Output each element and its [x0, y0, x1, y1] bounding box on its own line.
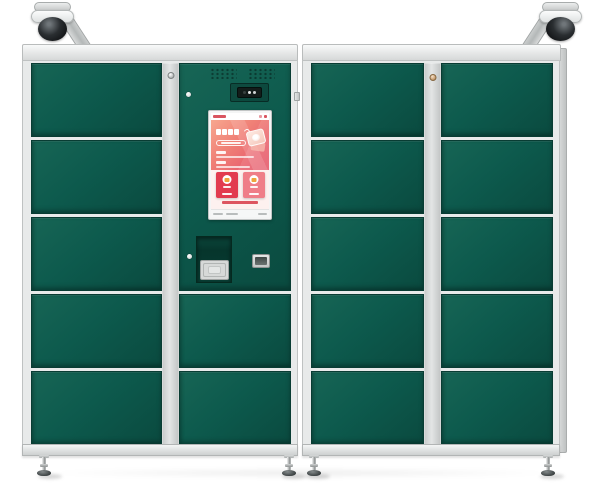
pickup-card-button[interactable] — [243, 172, 265, 198]
camera-lens-icon — [243, 91, 246, 94]
card-text-bar — [250, 186, 258, 188]
bullet-label-bar — [216, 161, 226, 164]
locker-door[interactable] — [311, 294, 424, 368]
hero-bullet-group — [216, 161, 256, 170]
screen-hero-banner — [211, 120, 269, 170]
footer-text-bar — [213, 213, 223, 215]
notice-text-bar — [222, 201, 258, 204]
status-dot — [259, 115, 262, 118]
panel-lock[interactable] — [186, 92, 191, 97]
locker-door[interactable] — [311, 63, 424, 137]
touchscreen[interactable] — [208, 110, 272, 220]
adjustable-foot — [281, 455, 297, 478]
control-panel — [179, 63, 291, 291]
hero-title — [216, 129, 239, 135]
camera-lens-icon — [253, 91, 256, 94]
left-cabinet-base — [22, 444, 298, 456]
right-cabinet-top-cap — [302, 44, 561, 61]
foot-nut — [310, 464, 318, 467]
right-cabinet-base — [302, 444, 560, 456]
title-glyph — [228, 129, 233, 135]
screen-header — [211, 113, 269, 120]
hinge — [294, 92, 300, 101]
locker-door[interactable] — [31, 294, 162, 368]
brand-logo — [213, 115, 226, 118]
foot-nut — [40, 464, 48, 467]
locker-door[interactable] — [441, 294, 553, 368]
camera-dome-lens-icon — [546, 17, 575, 41]
locker-door[interactable] — [179, 294, 291, 368]
right-cabinet-side-panel — [559, 48, 567, 453]
adjustable-foot — [36, 455, 52, 478]
card-label-bar — [222, 193, 232, 195]
control-column — [179, 63, 291, 445]
foot-nut — [285, 464, 293, 467]
deposit-parcel-icon — [225, 178, 230, 182]
panel-camera-module — [230, 83, 269, 102]
scanner-ring — [203, 263, 226, 277]
product-photo-smart-locker — [0, 0, 613, 489]
foot-nut — [544, 464, 552, 467]
locker-door[interactable] — [311, 217, 424, 291]
keyhole-lock[interactable] — [167, 72, 174, 79]
camera-dome-lens-icon — [38, 17, 67, 41]
foot-base — [541, 470, 555, 476]
locker-door[interactable] — [441, 140, 553, 214]
locker-door[interactable] — [31, 217, 162, 291]
card-label-bar — [249, 193, 259, 195]
pickup-icon-circle — [250, 175, 259, 184]
footer-text-bar — [226, 213, 238, 215]
pickup-parcel-icon — [252, 178, 257, 182]
left-cabinet-top-cap — [22, 44, 298, 61]
locker-door[interactable] — [31, 63, 162, 137]
bullet-text-bar — [216, 166, 250, 168]
hero-subtitle-pill — [216, 140, 246, 146]
deposit-icon-circle — [223, 175, 232, 184]
deposit-card-button[interactable] — [216, 172, 238, 198]
control-column-doors — [179, 294, 291, 445]
panel-lock[interactable] — [187, 254, 192, 259]
subtitle-text-bar — [221, 142, 241, 144]
locker-door[interactable] — [441, 63, 553, 137]
locker-door[interactable] — [441, 217, 553, 291]
locker-door[interactable] — [311, 371, 424, 445]
bullet-text-bar — [216, 156, 254, 158]
left-cabinet-lock-strip — [162, 63, 179, 445]
status-dot — [264, 115, 267, 118]
scanner-window — [208, 266, 222, 273]
panel-camera-lenses — [237, 87, 262, 98]
foot-base — [282, 470, 296, 476]
foot-base — [307, 470, 321, 476]
locker-door[interactable] — [179, 371, 291, 445]
adjustable-foot — [306, 455, 322, 478]
hero-bullet-group — [216, 151, 256, 161]
screen-footer — [211, 209, 269, 217]
right-cabinet-left-door-column — [311, 63, 424, 445]
footer-text-bar — [258, 213, 267, 215]
qr-code-scanner[interactable] — [200, 260, 229, 280]
left-cabinet — [22, 60, 298, 445]
title-glyph — [222, 129, 227, 135]
right-cabinet — [302, 60, 560, 445]
speaker-grille-icon — [210, 68, 237, 79]
locker-door[interactable] — [441, 371, 553, 445]
screen-ui — [211, 113, 269, 217]
locker-door[interactable] — [311, 140, 424, 214]
card-slot[interactable] — [252, 254, 270, 268]
card-text-bar — [223, 186, 231, 188]
locker-door[interactable] — [31, 371, 162, 445]
title-glyph — [234, 129, 239, 135]
foot-base — [37, 470, 51, 476]
camera-lens-icon — [248, 91, 251, 94]
card-slot-opening — [255, 257, 267, 265]
bullet-label-bar — [216, 151, 226, 154]
title-glyph — [216, 129, 221, 135]
adjustable-foot — [540, 455, 556, 478]
speaker-grille-icon — [248, 68, 275, 79]
screen-main-area — [211, 170, 269, 209]
left-cabinet-door-column — [31, 63, 162, 445]
keyhole-lock[interactable] — [429, 74, 436, 81]
locker-door[interactable] — [31, 140, 162, 214]
right-cabinet-lock-strip — [424, 63, 441, 445]
scanner-recess — [196, 236, 232, 283]
right-cabinet-right-door-column — [441, 63, 553, 445]
